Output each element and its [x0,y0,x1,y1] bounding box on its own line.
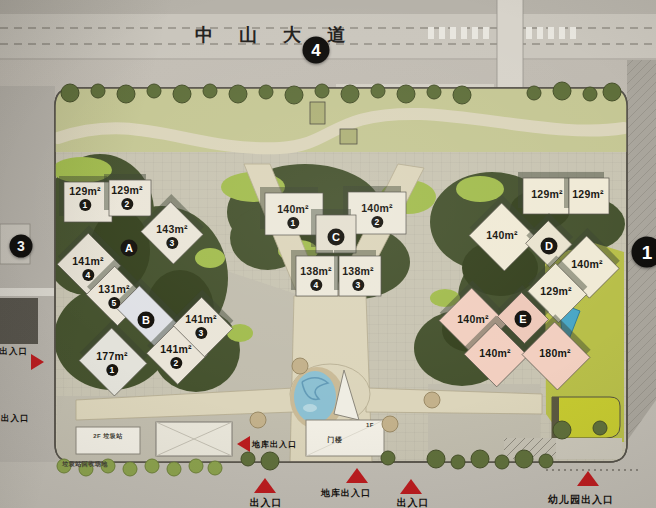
kindergarten-plaza [556,438,622,459]
west-road [0,86,55,462]
unit-area: 129m² [540,286,571,297]
block-badge-C: C [328,229,345,246]
entrance-arrow-icon [577,471,599,486]
facility-label: 门楼 [328,435,343,445]
entrance-label: 出入口 [397,496,430,508]
unit-number-badge: 1 [79,199,91,211]
unit-label: 177m²1 [96,351,127,376]
unit-label: 140m² [486,230,517,241]
unit-label: 129m²1 [69,186,100,211]
unit-area: 141m² [185,314,216,325]
entrance-label: 地库出入口 [252,439,297,450]
entrance-label: 出入口 [250,496,283,508]
unit-number-badge: 5 [108,297,120,309]
unit-area: 141m² [160,344,191,355]
unit-label: 129m² [572,189,603,200]
unit-area: 129m² [69,186,100,197]
entrance-arrow-icon [237,436,250,452]
road-name: 中山大道 [195,23,371,47]
unit-area: 138m² [342,266,373,277]
unit-number-badge: 1 [287,217,299,229]
unit-label: 138m²4 [300,266,331,291]
unit-label: 180m² [539,348,570,359]
block-badge-D: D [541,238,558,255]
unit-number-badge: 3 [352,279,364,291]
unit-label: 141m²4 [72,256,103,281]
entrance-label: 幼儿园出入口 [548,493,614,507]
unit-area: 140m² [571,259,602,270]
facility-label: 2F 垃圾站 [93,432,123,441]
entrance-label: 地库出入口 [321,487,371,500]
entrance-arrow-icon [400,479,422,494]
site-ground [45,88,627,462]
unit-label: 138m²3 [342,266,373,291]
unit-label: 131m²5 [98,284,129,309]
facility-label: 1F [366,422,374,428]
road-marker-3: 3 [10,235,33,258]
offsite-building-dark [0,298,38,344]
unit-area: 177m² [96,351,127,362]
unit-number-badge: 2 [170,357,182,369]
entrance-label: 出入口 [1,413,30,425]
entrance-label: 库出入口 [0,346,28,358]
unit-label: 141m²3 [185,314,216,339]
unit-label: 140m²1 [277,204,308,229]
unit-area: 129m² [572,189,603,200]
unit-label: 129m² [540,286,571,297]
unit-area: 143m² [156,224,187,235]
unit-area: 140m² [479,348,510,359]
unit-label: 141m²2 [160,344,191,369]
unit-area: 140m² [277,204,308,215]
unit-label: 129m² [531,189,562,200]
unit-area: 129m² [111,185,142,196]
unit-area: 180m² [539,348,570,359]
block-badge-B: B [138,312,155,329]
unit-label: 140m² [479,348,510,359]
facility-label: 垃圾站回收场地 [62,460,108,469]
entrance-arrow-icon [31,354,44,370]
unit-number-badge: 4 [82,269,94,281]
unit-number-badge: 3 [195,327,207,339]
unit-area: 140m² [457,314,488,325]
unit-number-badge: 4 [310,279,322,291]
block-badge-A: A [121,240,138,257]
unit-area: 129m² [531,189,562,200]
unit-number-badge: 2 [121,198,133,210]
unit-label: 143m²3 [156,224,187,249]
unit-number-badge: 3 [166,237,178,249]
unit-area: 138m² [300,266,331,277]
block-badge-E: E [515,311,532,328]
unit-area: 140m² [361,203,392,214]
road-marker-4: 4 [303,37,330,64]
unit-area: 140m² [486,230,517,241]
unit-label: 140m² [457,314,488,325]
entrance-arrow-icon [346,468,368,483]
unit-number-badge: 2 [371,216,383,228]
top-margin [0,0,656,12]
unit-area: 141m² [72,256,103,267]
unit-label: 140m² [571,259,602,270]
unit-label: 140m²2 [361,203,392,228]
unit-area: 131m² [98,284,129,295]
site-plan-photo: 中山大道 129m²1129m²2143m²3141m²4131m²5177m²… [0,0,656,508]
entrance-arrow-icon [254,478,276,493]
cross-street-road [497,0,523,88]
road-marker-1: 1 [632,237,656,268]
unit-label: 129m²2 [111,185,142,210]
unit-number-badge: 1 [106,364,118,376]
